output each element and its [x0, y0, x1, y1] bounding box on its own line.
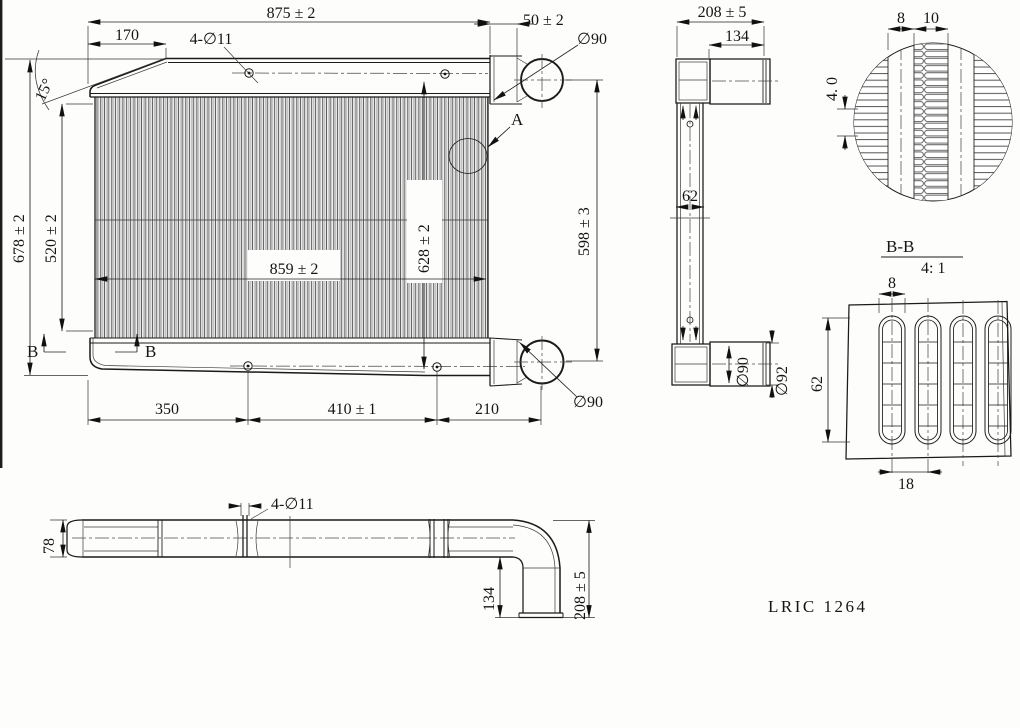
dim-bar-height: 78 — [41, 538, 58, 554]
dim-hole-mid: 410 ± 1 — [328, 401, 377, 418]
side-view: 208 ± 5 134 62 ∅90 ∅92 — [670, 4, 791, 398]
bottom-pipe — [490, 336, 572, 390]
top-mounting-holes — [224, 47, 488, 83]
bottom-bar — [67, 515, 515, 568]
section-plate — [846, 302, 1011, 460]
detail-a-view: 8 10 4. 0 — [824, 10, 1016, 204]
dim-overall-width: 875 ± 2 — [267, 5, 316, 22]
bottom-mounting-holes — [230, 362, 525, 371]
dim-hole-right: 210 — [475, 401, 499, 418]
dim-tube-depth-section: 62 — [809, 376, 826, 392]
scan-edge-line — [0, 0, 2, 468]
dim-hole-left: 350 — [155, 401, 179, 418]
side-core-body — [670, 103, 710, 344]
dim-elbow-drop: 134 — [481, 587, 498, 611]
dim-core-height: 520 ± 2 — [43, 214, 60, 263]
section-b-label-right: B — [145, 342, 156, 361]
dim-tube-width-section: 8 — [888, 275, 896, 292]
dim-core-width: 859 ± 2 — [270, 261, 319, 278]
dia-pipe-outer: ∅92 — [774, 366, 791, 396]
side-top-pipe — [710, 59, 770, 104]
dim-core-thickness: 62 — [682, 188, 698, 205]
dia-pipe-inner: ∅90 — [735, 357, 752, 387]
detail-a-fins — [846, 42, 1016, 204]
section-tubes — [879, 316, 1011, 444]
technical-drawing-page: 875 ± 2 170 4-∅11 50 ± 2 ∅90 15° 678 ± 2… — [0, 0, 1020, 728]
section-b-label-left: B — [27, 342, 38, 361]
dim-overall-height: 678 ± 2 — [11, 214, 28, 263]
dim-pipe-span: 598 ± 3 — [576, 207, 593, 256]
dim-fin-width-detail: 10 — [923, 10, 939, 27]
dim-fin-pitch: 4. 0 — [824, 77, 841, 101]
holes-label-top: 4-∅11 — [190, 31, 233, 48]
section-title: B-B — [886, 237, 914, 256]
part-code-label: LRIC 1264 — [768, 597, 867, 616]
dia-top-pipe: ∅90 — [577, 31, 607, 48]
dim-tube-pitch-section: 18 — [898, 476, 914, 493]
bottom-elbow — [513, 520, 563, 618]
section-bb-view: B-B 4: 1 8 62 18 — [809, 237, 1011, 493]
dim-tube-width-detail: 8 — [897, 10, 905, 27]
dim-depth: 208 ± 5 — [698, 4, 747, 21]
bottom-view: 78 4-∅11 134 208 ± 5 — [41, 496, 595, 620]
side-top-tank — [676, 59, 710, 103]
section-scale: 4: 1 — [921, 260, 945, 277]
holes-label-bottom: 4-∅11 — [271, 496, 314, 513]
dia-bottom-pipe: ∅90 — [573, 394, 603, 411]
top-pipe — [490, 54, 572, 108]
dim-left-offset: 170 — [115, 27, 139, 44]
dim-total-drop: 208 ± 5 — [572, 571, 589, 620]
engineering-drawing: 875 ± 2 170 4-∅11 50 ± 2 ∅90 15° 678 ± 2… — [0, 0, 1020, 728]
dim-pipe-length: 134 — [725, 28, 749, 45]
front-view: 875 ± 2 170 4-∅11 50 ± 2 ∅90 15° 678 ± 2… — [5, 5, 607, 425]
detail-a-label: A — [511, 110, 524, 129]
side-bottom-tank — [672, 344, 710, 385]
dim-mid-height: 628 ± 2 — [416, 224, 433, 273]
dim-pipe-stub: 50 ± 2 — [523, 12, 564, 29]
